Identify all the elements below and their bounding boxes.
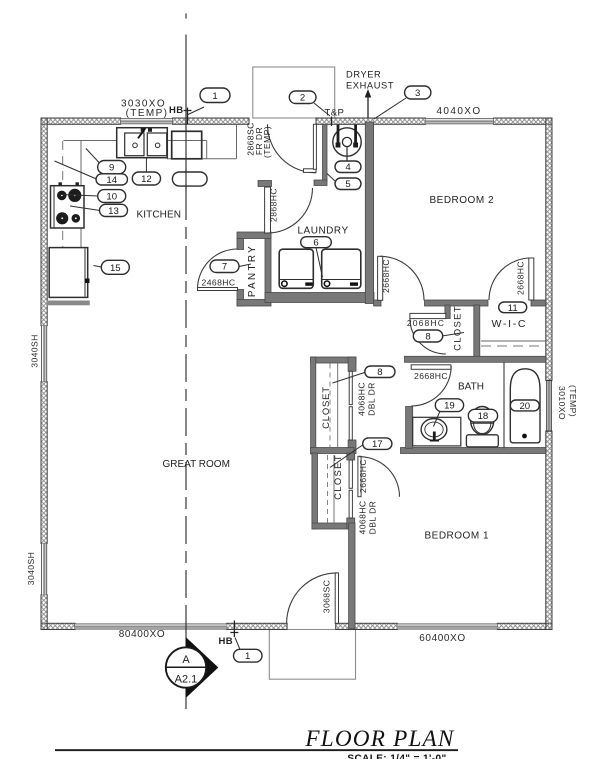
svg-text:HB: HB <box>169 105 184 116</box>
svg-text:KITCHEN: KITCHEN <box>137 210 182 221</box>
svg-text:3010XO: 3010XO <box>557 386 567 420</box>
svg-text:A: A <box>182 654 190 666</box>
svg-text:T&P: T&P <box>325 108 345 119</box>
svg-text:4068HC: 4068HC <box>357 382 367 416</box>
svg-text:14: 14 <box>106 175 117 186</box>
svg-text:7: 7 <box>222 262 227 273</box>
svg-text:(TEMP): (TEMP) <box>126 108 169 119</box>
svg-text:80400XO: 80400XO <box>119 629 165 640</box>
svg-text:HB: HB <box>219 636 234 647</box>
svg-text:17: 17 <box>372 439 383 450</box>
svg-text:DBL DR: DBL DR <box>367 382 377 416</box>
svg-text:18: 18 <box>478 411 489 422</box>
svg-text:2668HC: 2668HC <box>381 259 391 293</box>
svg-text:1: 1 <box>245 651 250 662</box>
svg-text:(TEMP): (TEMP) <box>262 126 272 158</box>
svg-text:4: 4 <box>345 162 351 173</box>
svg-text:3068SC: 3068SC <box>321 580 331 613</box>
svg-text:DBL DR: DBL DR <box>368 501 378 535</box>
svg-text:11: 11 <box>508 303 518 314</box>
svg-text:12: 12 <box>141 174 152 185</box>
svg-text:LAUNDRY: LAUNDRY <box>298 226 349 237</box>
svg-text:5: 5 <box>345 179 350 190</box>
svg-text:CLOSET: CLOSET <box>321 386 332 429</box>
svg-text:BATH: BATH <box>458 382 484 393</box>
svg-text:2068HC: 2068HC <box>407 318 445 328</box>
svg-text:BEDROOM 2: BEDROOM 2 <box>430 195 495 206</box>
svg-text:(TEMP): (TEMP) <box>568 385 578 417</box>
svg-text:FLOOR PLAN: FLOOR PLAN <box>304 726 455 752</box>
svg-text:A2.1: A2.1 <box>175 674 198 686</box>
svg-text:1: 1 <box>212 91 217 102</box>
svg-text:SCALE: 1/4" = 1'-0": SCALE: 1/4" = 1'-0" <box>347 754 446 759</box>
svg-text:13: 13 <box>108 206 119 217</box>
svg-text:19: 19 <box>444 401 455 412</box>
svg-text:8: 8 <box>425 332 430 343</box>
svg-text:3040SH: 3040SH <box>26 552 36 585</box>
svg-text:3: 3 <box>415 88 420 99</box>
svg-text:2: 2 <box>300 93 305 104</box>
svg-text:DRYER: DRYER <box>346 70 381 80</box>
svg-text:10: 10 <box>106 192 117 203</box>
svg-text:9: 9 <box>109 163 114 174</box>
svg-text:4040XO: 4040XO <box>436 106 481 117</box>
svg-text:3040SH: 3040SH <box>30 334 40 367</box>
svg-text:CLOSET: CLOSET <box>333 454 344 500</box>
svg-text:60400XO: 60400XO <box>419 633 465 644</box>
svg-text:GREAT ROOM: GREAT ROOM <box>163 459 230 470</box>
svg-text:2468HC: 2468HC <box>202 278 236 288</box>
svg-text:2668HC: 2668HC <box>358 459 368 493</box>
svg-text:PANTRY: PANTRY <box>247 244 258 297</box>
svg-text:4068HC: 4068HC <box>358 501 368 535</box>
svg-text:20: 20 <box>519 401 530 412</box>
svg-text:15: 15 <box>110 263 121 274</box>
svg-text:2668HC: 2668HC <box>516 261 526 295</box>
svg-text:8: 8 <box>377 367 382 378</box>
svg-text:EXHAUST: EXHAUST <box>346 81 394 91</box>
svg-text:W-I-C: W-I-C <box>492 318 528 330</box>
svg-text:2668HC: 2668HC <box>414 371 448 381</box>
svg-text:6: 6 <box>313 238 318 249</box>
svg-text:2868HC: 2868HC <box>269 188 279 222</box>
svg-text:CLOSET: CLOSET <box>453 305 464 351</box>
svg-text:BEDROOM 1: BEDROOM 1 <box>425 531 490 542</box>
